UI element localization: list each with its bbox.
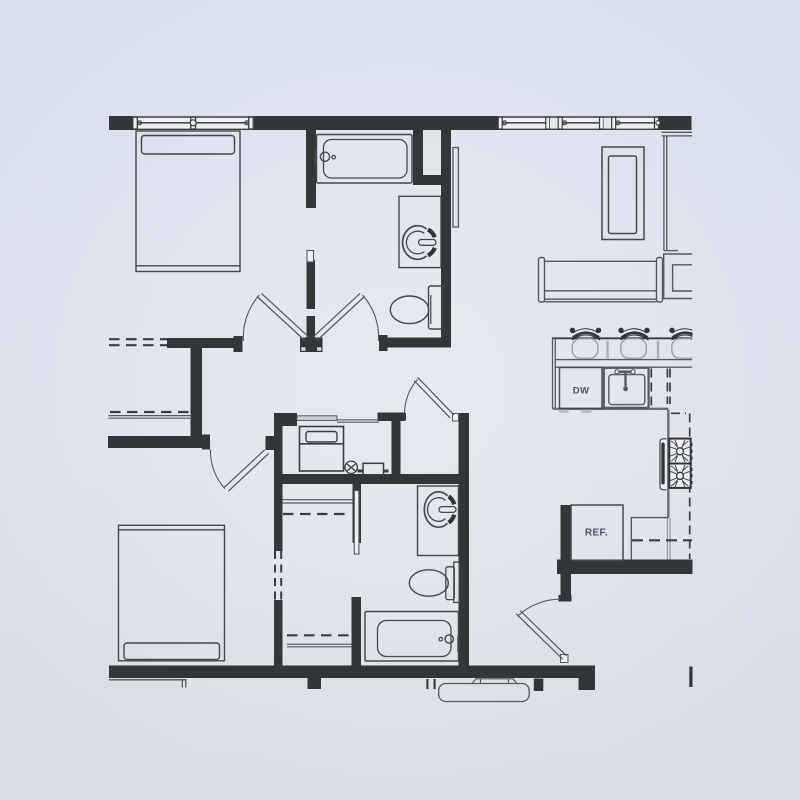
svg-text:REF.: REF.	[585, 528, 608, 539]
svg-text:DW: DW	[573, 386, 589, 397]
